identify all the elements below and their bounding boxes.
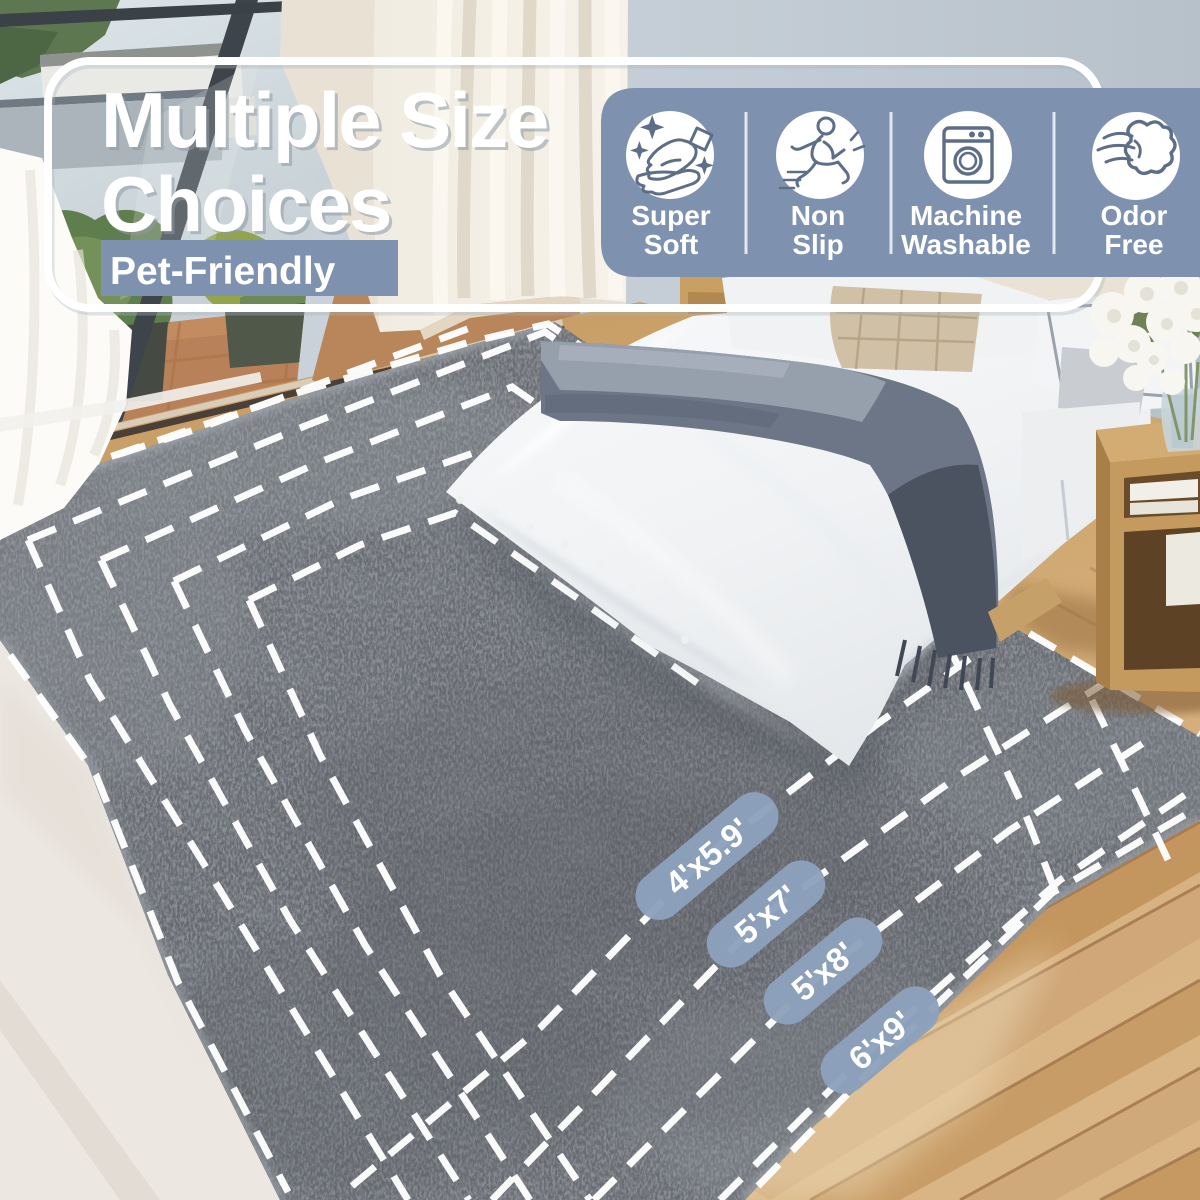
svg-text:Soft: Soft: [644, 229, 698, 260]
svg-text:Machine: Machine: [910, 200, 1022, 231]
svg-text:Free: Free: [1104, 229, 1163, 260]
svg-text:Multiple Size: Multiple Size: [101, 76, 547, 164]
svg-text:Slip: Slip: [792, 229, 843, 260]
svg-text:Choices: Choices: [101, 160, 390, 248]
svg-text:Odor: Odor: [1101, 200, 1168, 231]
svg-text:Pet-Friendly: Pet-Friendly: [110, 250, 336, 293]
svg-text:Non: Non: [791, 200, 845, 231]
svg-text:Super: Super: [631, 200, 710, 231]
svg-text:Washable: Washable: [901, 229, 1031, 260]
